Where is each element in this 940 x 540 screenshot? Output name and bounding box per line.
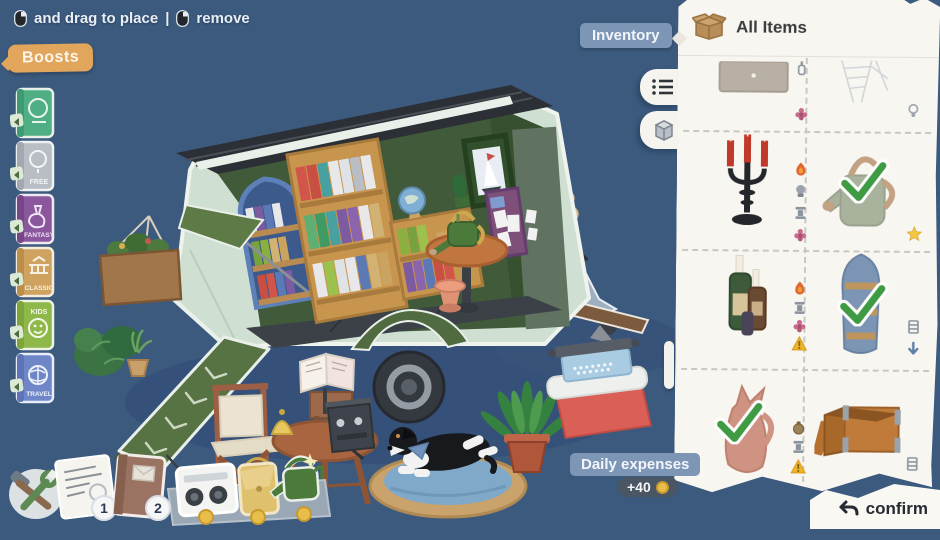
inventory-item-watering-can[interactable]: [806, 133, 927, 249]
cube-icon: [650, 117, 676, 143]
panel-scrollbar[interactable]: [664, 341, 674, 389]
daily-expenses-label: Daily expenses: [570, 453, 700, 476]
inventory-item-boat-shelf[interactable]: [805, 252, 926, 368]
star-icon: [906, 226, 922, 242]
shelf-icon: [904, 456, 920, 472]
coin-icon: [656, 481, 669, 494]
inventory-item-ladder[interactable]: [807, 58, 928, 130]
svg-text:KIDS: KIDS: [31, 309, 48, 316]
hint-remove-label: remove: [196, 10, 249, 27]
mouse-remove-icon: [176, 10, 189, 27]
boost-book-classic[interactable]: CLASSIC: [10, 245, 56, 299]
svg-text:FANTASY: FANTASY: [24, 232, 55, 239]
daily-expenses-amount: +40: [618, 477, 678, 497]
undo-arrow-icon: [838, 499, 860, 519]
lightbulb-icon: [905, 103, 921, 119]
hint-separator: |: [165, 10, 169, 27]
box-icon: [692, 13, 726, 40]
confirm-label: confirm: [866, 499, 928, 519]
boost-book-kids[interactable]: KIDS: [10, 298, 56, 352]
inventory-item-dresser[interactable]: [681, 57, 802, 129]
mouse-drag-icon: [14, 10, 27, 27]
panel-title: All Items: [736, 17, 807, 38]
check-icon: [835, 280, 889, 326]
inventory-panel: All Items: [674, 0, 940, 540]
wheel: [374, 352, 444, 422]
check-icon: [712, 398, 766, 444]
svg-text:FREE: FREE: [30, 179, 49, 186]
inventory-item-candelabra[interactable]: [680, 132, 801, 248]
hanging-basket[interactable]: [100, 216, 181, 305]
journal-badge: 2: [146, 496, 170, 520]
check-icon: [837, 157, 891, 203]
coin-icon: [297, 507, 311, 521]
expenses-value: +40: [627, 479, 651, 495]
inventory-item-wooden-crate[interactable]: [804, 371, 925, 487]
inventory-header: All Items: [692, 13, 807, 41]
shelf-icon: [905, 319, 921, 335]
wall-note: [525, 209, 537, 223]
coin-icon: [251, 510, 265, 524]
svg-text:TRAVEL: TRAVEL: [26, 391, 52, 398]
inventory-item-bottle-candles[interactable]: [679, 251, 800, 367]
note-badge: 1: [92, 496, 116, 520]
tote-bag[interactable]: [238, 457, 279, 515]
boost-book-travel[interactable]: TRAVEL: [10, 351, 56, 405]
boost-book-free[interactable]: FREE: [10, 139, 56, 193]
down-arrow-icon: [905, 341, 921, 357]
placement-hint: and drag to place | remove: [14, 10, 250, 27]
coin-icon: [199, 510, 213, 524]
svg-text:CLASSIC: CLASSIC: [25, 285, 54, 292]
inventory-label: Inventory: [580, 23, 672, 48]
svg-text:2: 2: [154, 500, 162, 516]
boosts-button[interactable]: Boosts: [8, 43, 94, 72]
list-view-icon: [651, 77, 675, 97]
boost-book-1[interactable]: [10, 86, 56, 140]
svg-text:1: 1: [100, 500, 108, 516]
boost-book-fantasy[interactable]: FANTASY: [10, 192, 56, 246]
hint-drag-label: and drag to place: [34, 10, 158, 27]
